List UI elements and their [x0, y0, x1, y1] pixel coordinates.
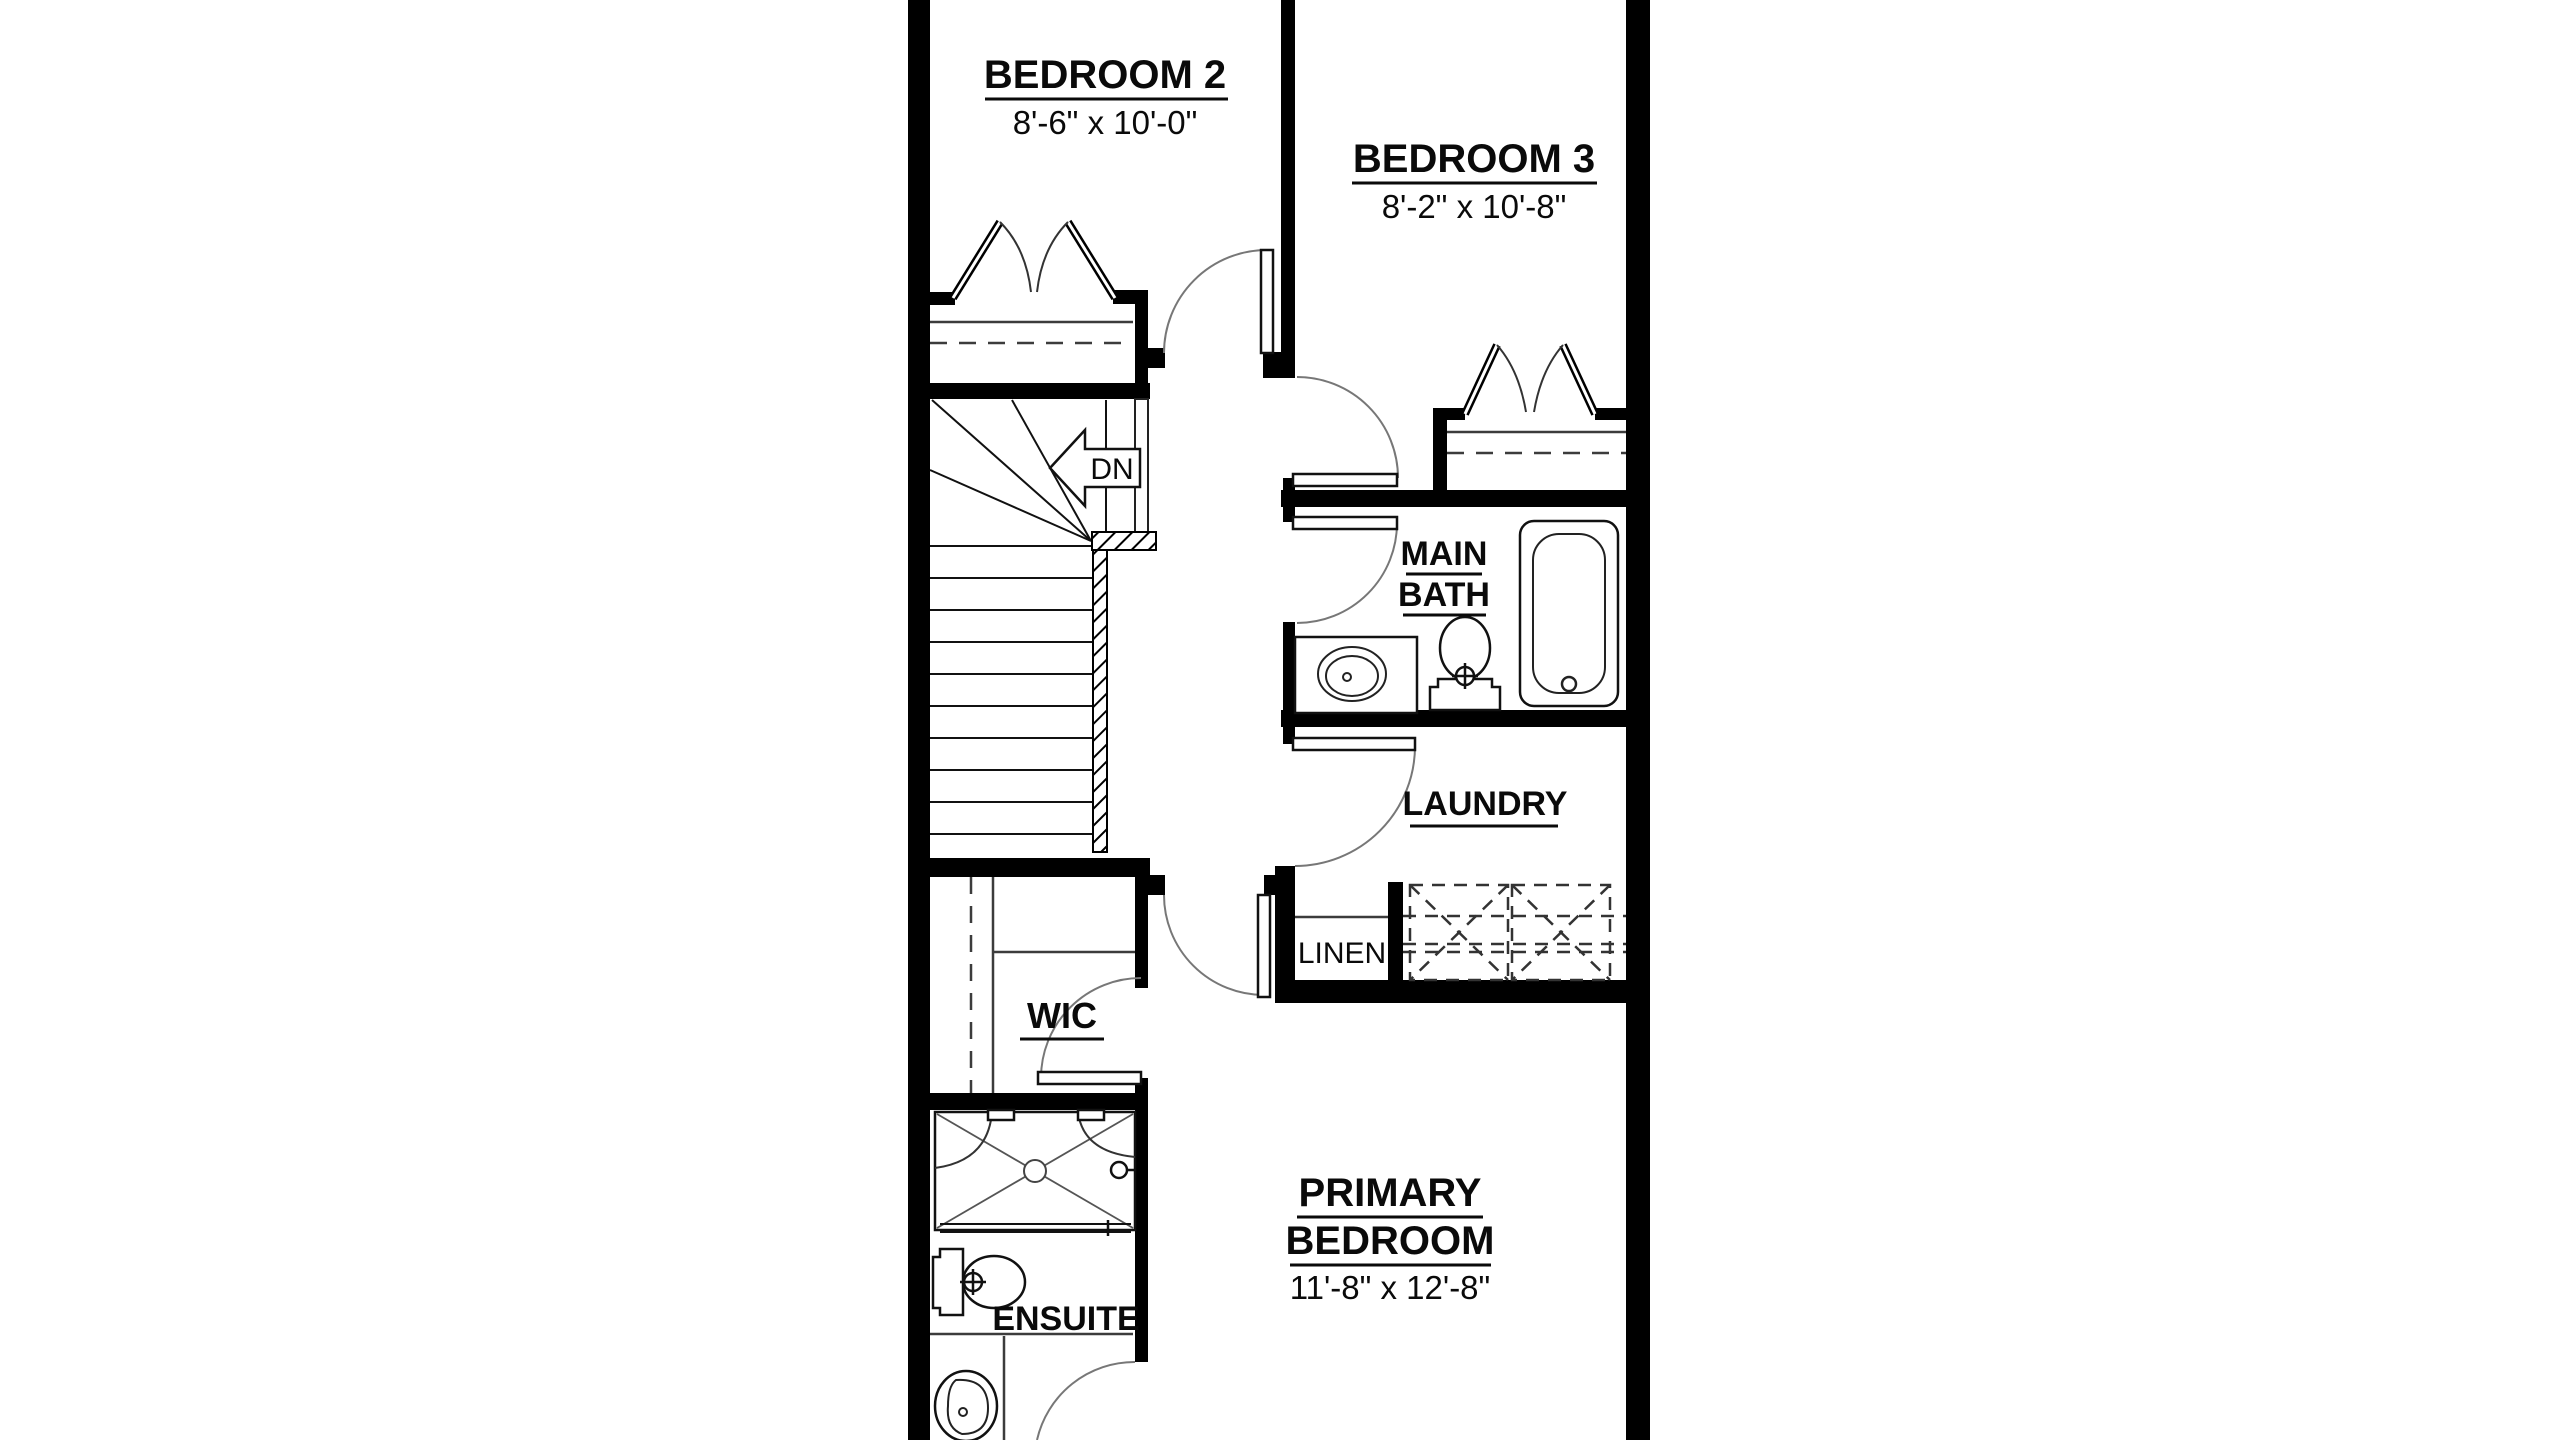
stair-treads	[930, 546, 1093, 834]
washer	[1410, 885, 1508, 980]
primary-bedroom-dims: 11'-8" x 12'-8"	[1290, 1269, 1491, 1306]
wall-bed3-closet-stub-left	[1433, 408, 1465, 420]
bedroom3-closet	[1447, 345, 1626, 453]
shower	[935, 1110, 1135, 1236]
wic-label: WIC	[1027, 995, 1097, 1036]
wall-ensuite-north	[908, 1093, 1148, 1110]
ensuite-label: ENSUITE	[992, 1300, 1139, 1338]
wall-wic-east	[1135, 858, 1148, 988]
wic-interior	[971, 877, 1135, 1093]
wall-bath-north	[1281, 490, 1626, 507]
main-bath-label-line1: MAIN	[1401, 535, 1488, 573]
bathtub	[1520, 521, 1618, 706]
ensuite-door	[1037, 1362, 1135, 1440]
bedroom2-dims: 8'-6" x 10'-0"	[1013, 104, 1198, 141]
primary-bedroom-label-line1: PRIMARY	[1299, 1171, 1482, 1215]
bifold-doors	[1465, 345, 1595, 414]
wall-laundry-bottom	[1275, 980, 1626, 1003]
wall-partition-bedrooms	[1281, 0, 1295, 354]
dryer	[1512, 885, 1610, 980]
primary-bedroom-label-line2: BEDROOM	[1286, 1219, 1495, 1263]
wall-bed3-closet-left	[1433, 408, 1447, 490]
wall-stair-bottom	[908, 858, 1150, 877]
wall-bed3-closet-stub-right	[1595, 408, 1626, 420]
bedroom2-closet	[930, 222, 1133, 343]
stair-stringer-hatched	[1093, 550, 1107, 852]
toilet	[1430, 617, 1500, 710]
floorplan-canvas: DN	[0, 0, 2560, 1440]
wall-stair-top	[908, 383, 1150, 399]
wall-exterior-right	[1626, 0, 1650, 1440]
shower-drain	[1024, 1160, 1046, 1182]
wall-partition-stub	[1263, 352, 1295, 378]
bedroom2-door	[1164, 250, 1273, 353]
stair-down-label: DN	[1090, 453, 1133, 486]
wall-bed2-door-stub	[1148, 348, 1165, 368]
bedroom2-label: BEDROOM 2	[984, 53, 1226, 97]
bedroom3-dims: 8'-2" x 10'-8"	[1382, 188, 1567, 225]
wall-bed2-closet-stub-left	[925, 292, 955, 305]
laundry-door	[1293, 738, 1415, 866]
wall-bed2-closet-right	[1135, 290, 1148, 399]
shower-control	[1111, 1162, 1127, 1178]
main-bath-door	[1293, 517, 1397, 623]
bedroom3-door	[1293, 377, 1398, 486]
linen-label: LINEN	[1298, 937, 1386, 970]
pedestal-sink	[935, 1371, 997, 1440]
floorplan-drawing: DN	[0, 0, 2560, 1440]
wall-hall-east-mid	[1283, 622, 1295, 712]
bifold-doors	[953, 222, 1115, 298]
wall-exterior-left	[908, 0, 930, 1440]
laundry-label: LAUNDRY	[1403, 785, 1568, 823]
ensuite-fixtures	[930, 1110, 1135, 1440]
staircase: DN	[930, 399, 1156, 852]
stair-railing-cap-hatched	[1092, 532, 1156, 550]
vanity-sink	[1295, 637, 1417, 713]
bedroom3-label: BEDROOM 3	[1353, 137, 1595, 181]
main-bath-label-line2: BATH	[1398, 576, 1490, 614]
wall-hall-bottom-stub-right	[1264, 875, 1283, 895]
wall-hall-bottom-stub-left	[1148, 875, 1165, 895]
primary-bedroom-door	[1164, 895, 1270, 997]
